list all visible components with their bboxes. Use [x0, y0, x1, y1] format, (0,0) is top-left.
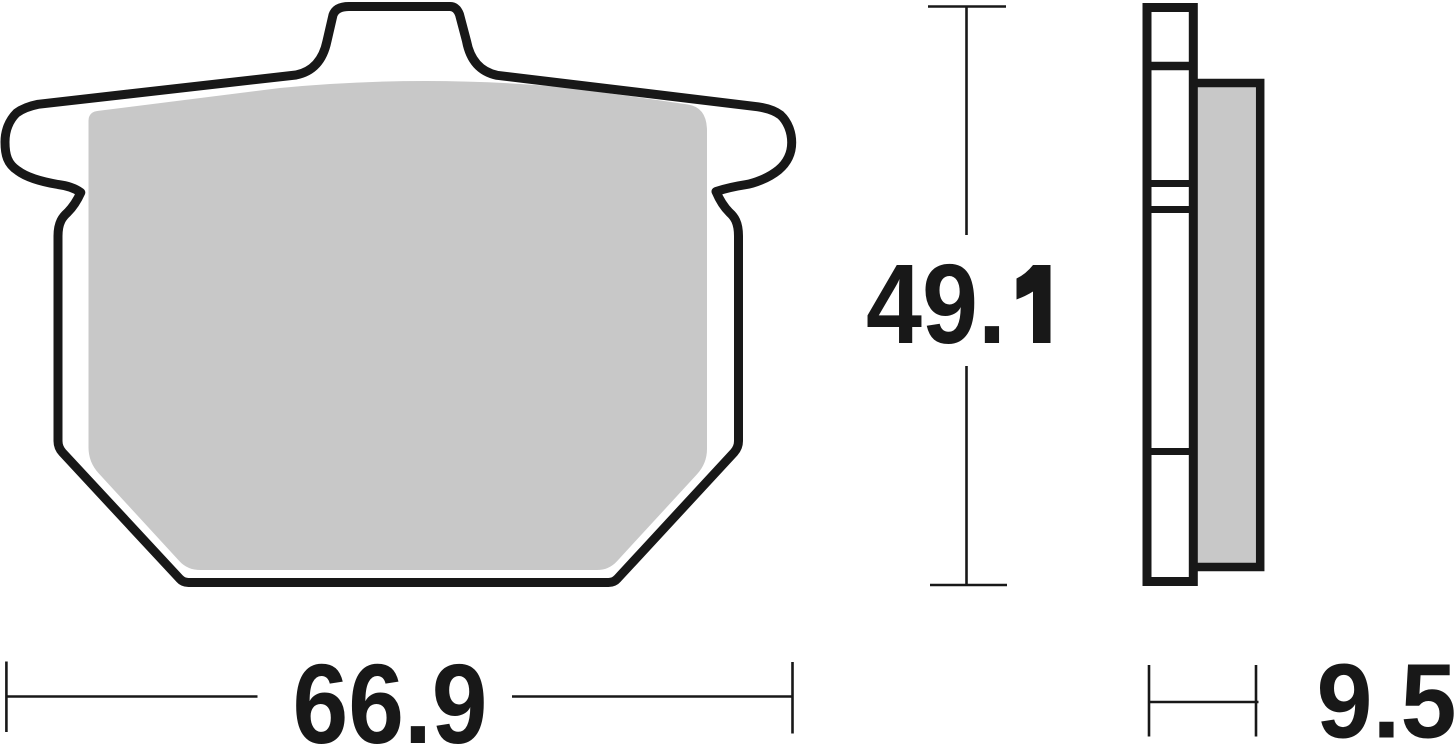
svg-text:9.5: 9.5: [1317, 643, 1454, 745]
svg-text:49.: 49.: [866, 241, 1006, 367]
svg-text:66.9: 66.9: [293, 641, 488, 745]
